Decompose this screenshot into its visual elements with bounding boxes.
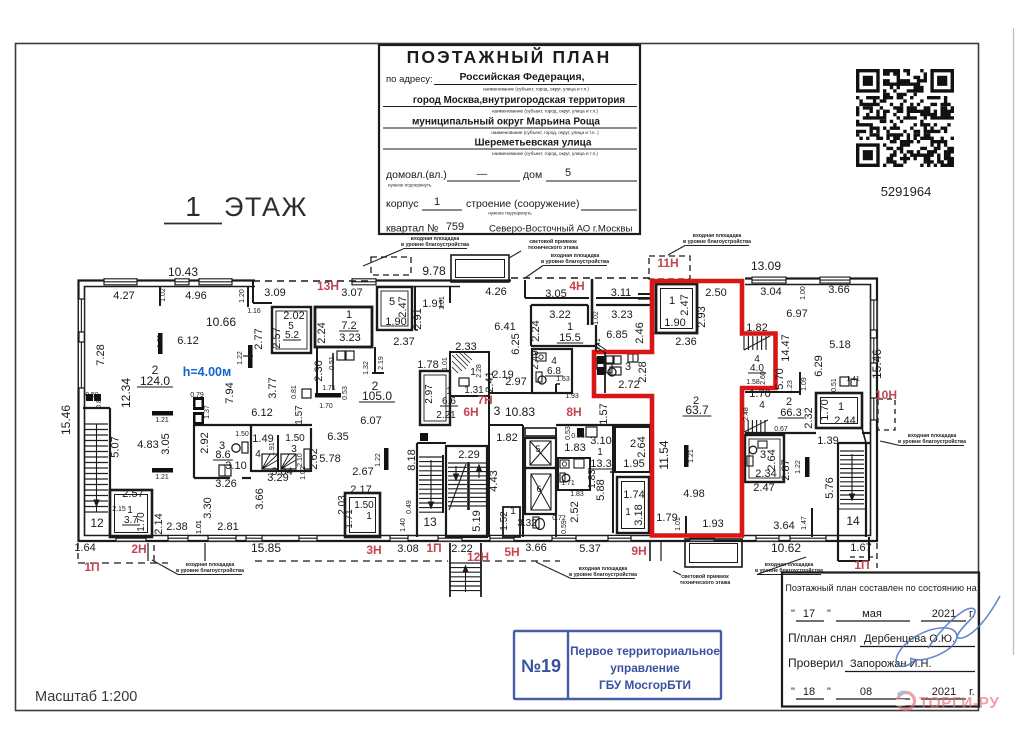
svg-text:3.07: 3.07: [341, 287, 362, 299]
svg-text:Проверил: Проверил: [788, 656, 843, 670]
svg-text:1: 1: [669, 295, 675, 307]
svg-text:15.46: 15.46: [59, 405, 73, 435]
svg-text:1.71: 1.71: [322, 385, 336, 392]
svg-text:2.28: 2.28: [476, 364, 483, 378]
svg-text:3.10: 3.10: [225, 460, 246, 472]
svg-text:2.97: 2.97: [505, 376, 526, 388]
svg-text:1.21: 1.21: [155, 474, 169, 481]
svg-text:2.10: 2.10: [297, 453, 304, 467]
svg-text:13Н: 13Н: [317, 279, 339, 293]
svg-text:14.47: 14.47: [780, 334, 792, 362]
svg-text:3.11: 3.11: [611, 287, 632, 299]
svg-text:3.32: 3.32: [517, 518, 537, 529]
svg-text:1П: 1П: [854, 558, 869, 572]
svg-text:0.51: 0.51: [329, 356, 336, 370]
svg-text:1.40: 1.40: [400, 518, 407, 532]
svg-text:1.52: 1.52: [499, 511, 510, 531]
svg-text:9Н: 9Н: [631, 544, 646, 558]
svg-text:1.57: 1.57: [598, 403, 610, 424]
svg-text:0.59: 0.59: [561, 520, 568, 534]
svg-text:1.71: 1.71: [561, 480, 575, 487]
svg-text:1.78: 1.78: [417, 359, 438, 371]
svg-text:1.90: 1.90: [664, 317, 685, 329]
svg-text:3.77: 3.77: [267, 377, 279, 398]
svg-text:1.09: 1.09: [801, 377, 808, 391]
svg-text:10.62: 10.62: [771, 541, 801, 555]
svg-text:18: 18: [803, 686, 815, 698]
svg-text:5.78: 5.78: [319, 453, 340, 465]
svg-text:14: 14: [846, 514, 860, 528]
svg-text:в уровне благоустройства: в уровне благоустройства: [683, 238, 751, 245]
svg-text:2.37: 2.37: [393, 336, 414, 348]
svg-text:в уровне благоустройства: в уровне благоустройства: [176, 567, 244, 574]
svg-text:2Н: 2Н: [131, 542, 146, 556]
svg-text:2.57: 2.57: [122, 488, 143, 500]
svg-text:5Н: 5Н: [504, 545, 519, 559]
svg-text:1.32: 1.32: [363, 361, 370, 375]
svg-text:7.28: 7.28: [95, 344, 107, 365]
svg-text:корпус: корпус: [386, 198, 418, 210]
svg-text:4.43: 4.43: [488, 470, 500, 491]
svg-text:2.46: 2.46: [634, 322, 646, 343]
svg-text:1.22: 1.22: [795, 460, 802, 474]
svg-text:10.83: 10.83: [505, 405, 535, 419]
svg-text:2.24: 2.24: [316, 322, 328, 343]
svg-text:2.38: 2.38: [166, 521, 187, 533]
svg-text:1: 1: [838, 401, 844, 413]
svg-text:15.5: 15.5: [559, 332, 580, 344]
svg-text:2.64: 2.64: [766, 449, 778, 470]
svg-text:2.33: 2.33: [455, 341, 476, 353]
svg-text:1.63: 1.63: [556, 376, 570, 383]
svg-text:в уровне благоустройства: в уровне благоустройства: [898, 438, 966, 445]
svg-text:1.71: 1.71: [344, 509, 355, 529]
svg-text:1.01: 1.01: [439, 296, 446, 310]
svg-text:124.0: 124.0: [140, 374, 170, 388]
svg-text:2.15: 2.15: [112, 506, 126, 513]
svg-text:2.48: 2.48: [743, 407, 750, 421]
svg-text:3.66: 3.66: [254, 488, 266, 509]
svg-text:2.30: 2.30: [313, 360, 325, 381]
svg-text:0.79: 0.79: [190, 392, 204, 399]
svg-text:1.70: 1.70: [136, 512, 147, 532]
svg-text:1П: 1П: [84, 560, 99, 574]
svg-text:3.22: 3.22: [549, 309, 570, 321]
svg-text:№19: №19: [521, 656, 561, 676]
svg-text:3.10: 3.10: [590, 435, 611, 447]
svg-text:13.3: 13.3: [590, 458, 611, 470]
svg-text:66.3: 66.3: [780, 407, 801, 419]
svg-text:1.02: 1.02: [160, 288, 167, 302]
svg-text:13: 13: [423, 515, 437, 529]
svg-text:Российская Федерация,: Российская Федерация,: [459, 71, 584, 83]
svg-text:нужное подчеркнуть: нужное подчеркнуть: [488, 211, 532, 216]
svg-text:10Н: 10Н: [875, 388, 897, 402]
svg-text:1.83: 1.83: [570, 491, 584, 498]
svg-text:управление: управление: [610, 661, 680, 675]
svg-text:5.07: 5.07: [110, 436, 122, 457]
svg-text:759: 759: [446, 221, 464, 233]
svg-text:строение (сооружение): строение (сооружение): [466, 198, 580, 210]
svg-text:0.53: 0.53: [342, 386, 349, 400]
svg-text:0.67: 0.67: [774, 426, 788, 433]
svg-text:ЭТАЖ: ЭТАЖ: [224, 192, 308, 222]
svg-text:наименование (субъект, город,: наименование (субъект, город, округ, ули…: [492, 151, 598, 156]
svg-text:4.96: 4.96: [185, 290, 206, 302]
svg-text:1.02: 1.02: [593, 311, 600, 325]
svg-text:2.14: 2.14: [153, 513, 165, 534]
svg-text:1.70: 1.70: [819, 399, 831, 420]
svg-text:технического этажа: технического этажа: [528, 245, 579, 251]
svg-text:1.22: 1.22: [375, 453, 382, 467]
svg-text:6Н: 6Н: [463, 405, 478, 419]
svg-text:0.82: 0.82: [96, 395, 103, 409]
svg-text:2.21: 2.21: [436, 410, 456, 421]
svg-text:1.01: 1.01: [675, 517, 682, 531]
svg-text:": ": [791, 608, 795, 620]
svg-text:2.50: 2.50: [705, 287, 726, 299]
svg-text:17: 17: [803, 608, 815, 620]
svg-text:6.25: 6.25: [510, 333, 522, 354]
svg-text:3: 3: [494, 404, 501, 418]
svg-text:2.24: 2.24: [530, 320, 542, 341]
svg-text:": ": [827, 608, 831, 620]
svg-text:0.51: 0.51: [831, 378, 838, 392]
svg-text:дом: дом: [523, 169, 542, 181]
svg-text:11Н: 11Н: [657, 256, 678, 270]
svg-text:в уровне благоустройства: в уровне благоустройства: [401, 241, 469, 248]
svg-text:7.94: 7.94: [224, 382, 236, 403]
svg-text:2.62: 2.62: [308, 448, 320, 469]
svg-text:12Н: 12Н: [467, 550, 489, 564]
svg-text:4.98: 4.98: [683, 488, 704, 500]
svg-text:4.26: 4.26: [485, 286, 506, 298]
svg-text:2021: 2021: [932, 608, 956, 620]
svg-text:нужное подчеркнуть: нужное подчеркнуть: [388, 183, 432, 188]
svg-text:1.70: 1.70: [749, 388, 770, 400]
svg-text:домовл.(вл.): домовл.(вл.): [386, 169, 447, 181]
svg-text:1.50: 1.50: [354, 500, 374, 511]
svg-text:3Н: 3Н: [366, 543, 381, 557]
svg-text:1: 1: [597, 447, 603, 458]
svg-text:6.41: 6.41: [494, 321, 515, 333]
svg-text:0.81: 0.81: [291, 385, 298, 399]
svg-text:ПОЭТАЖНЫЙ ПЛАН: ПОЭТАЖНЫЙ ПЛАН: [407, 46, 612, 67]
svg-text:1.95: 1.95: [623, 458, 644, 470]
svg-text:10.66: 10.66: [206, 315, 236, 329]
svg-text:63.7: 63.7: [685, 403, 709, 417]
svg-text:5: 5: [535, 444, 540, 454]
svg-text:2.52: 2.52: [569, 501, 581, 522]
svg-text:1.67: 1.67: [850, 542, 871, 554]
svg-text:3.29: 3.29: [267, 472, 288, 484]
svg-text:7.2: 7.2: [341, 320, 356, 332]
svg-text:2.47: 2.47: [753, 482, 774, 494]
svg-text:ГБУ МосгорБТИ: ГБУ МосгорБТИ: [599, 678, 691, 692]
svg-text:0.41: 0.41: [595, 338, 602, 352]
svg-text:1.93: 1.93: [702, 518, 723, 530]
svg-text:1.91: 1.91: [269, 442, 276, 456]
svg-text:3.23: 3.23: [339, 332, 360, 344]
svg-text:6: 6: [536, 484, 541, 494]
svg-text:2.92: 2.92: [199, 432, 211, 453]
svg-text:1: 1: [185, 191, 201, 222]
svg-text:1: 1: [510, 506, 516, 517]
svg-text:муниципальный округ Марьина Ро: муниципальный округ Марьина Роща: [412, 117, 600, 128]
svg-text:2.17: 2.17: [350, 484, 371, 496]
svg-text:6.12: 6.12: [251, 407, 272, 419]
svg-text:3.09: 3.09: [264, 287, 285, 299]
svg-text:Северо-Восточный АО г.Москвы: Северо-Восточный АО г.Москвы: [489, 224, 632, 235]
svg-text:1.21: 1.21: [157, 334, 164, 348]
svg-text:наименование (субъект, город,: наименование (субъект, город, округ, ули…: [491, 130, 599, 135]
svg-text:2.49: 2.49: [530, 350, 541, 370]
svg-text:2.36: 2.36: [675, 336, 696, 348]
svg-text:2.41: 2.41: [484, 371, 496, 392]
svg-text:1.50: 1.50: [235, 431, 249, 438]
svg-text:2.29: 2.29: [458, 449, 479, 461]
svg-text:световой приямок: световой приямок: [681, 573, 729, 580]
svg-text:3.26: 3.26: [215, 478, 236, 490]
svg-text:3.64: 3.64: [773, 520, 794, 532]
svg-text:3.66: 3.66: [525, 542, 546, 554]
svg-text:5.37: 5.37: [579, 543, 600, 555]
svg-text:5: 5: [565, 167, 571, 179]
svg-text:6.35: 6.35: [327, 431, 348, 443]
svg-text:1.70: 1.70: [319, 403, 333, 410]
svg-text:": ": [827, 686, 831, 698]
svg-text:П/план снял: П/план снял: [788, 631, 856, 645]
svg-text:9.78: 9.78: [422, 264, 446, 278]
svg-text:1.01: 1.01: [442, 357, 449, 371]
svg-text:1.23: 1.23: [787, 380, 794, 394]
svg-text:4.27: 4.27: [113, 290, 134, 302]
svg-text:105.0: 105.0: [362, 389, 392, 403]
svg-text:2.87: 2.87: [780, 459, 792, 480]
svg-text:15.85: 15.85: [251, 541, 281, 555]
svg-text:2.93: 2.93: [696, 306, 708, 327]
svg-text:2.57: 2.57: [271, 327, 283, 348]
svg-text:Дербенцева О.Ю.: Дербенцева О.Ю.: [864, 633, 955, 645]
svg-text:3.18: 3.18: [633, 504, 645, 525]
svg-text:1.21: 1.21: [155, 417, 169, 424]
svg-text:1.82: 1.82: [496, 432, 517, 444]
svg-text:2.02: 2.02: [283, 310, 304, 322]
svg-text:2.19: 2.19: [378, 356, 385, 370]
svg-text:2.81: 2.81: [217, 521, 238, 533]
svg-text:2.47: 2.47: [397, 296, 409, 317]
svg-text:2.32: 2.32: [803, 407, 815, 428]
svg-text:1.83: 1.83: [587, 469, 598, 489]
svg-text:0.49: 0.49: [406, 500, 413, 514]
svg-text:2.44: 2.44: [834, 415, 855, 427]
svg-text:1.41: 1.41: [846, 376, 860, 383]
svg-text:1.16: 1.16: [247, 308, 261, 315]
svg-text:3: 3: [625, 361, 631, 373]
svg-text:3.23: 3.23: [611, 309, 632, 321]
svg-text:4: 4: [255, 449, 261, 460]
svg-text:3.08: 3.08: [397, 543, 418, 555]
svg-text:h=4.00м: h=4.00м: [183, 365, 232, 379]
svg-text:по адресу:: по адресу:: [386, 74, 433, 85]
svg-text:1.74: 1.74: [623, 489, 644, 501]
svg-text:наименование (субъект, город,: наименование (субъект, город, округ, ули…: [492, 109, 598, 114]
svg-text:5.2: 5.2: [285, 330, 299, 341]
svg-text:2.60: 2.60: [760, 371, 767, 385]
svg-text:5: 5: [389, 296, 395, 308]
svg-text:1.00: 1.00: [800, 286, 807, 300]
svg-text:технического этажа: технического этажа: [680, 580, 731, 586]
svg-text:Первое территориальное: Первое территориальное: [570, 644, 720, 658]
svg-text:Шереметьевская улица: Шереметьевская улица: [475, 138, 592, 149]
svg-text:в уровне благоустройства: в уровне благоустройства: [541, 258, 609, 265]
svg-text:1.57: 1.57: [294, 405, 305, 425]
svg-text:6.6: 6.6: [442, 396, 456, 407]
svg-text:1: 1: [434, 196, 440, 208]
svg-text:2.64: 2.64: [636, 436, 648, 457]
svg-text:5.76: 5.76: [824, 477, 836, 498]
svg-text:12.34: 12.34: [119, 378, 133, 408]
svg-text:1.82: 1.82: [746, 322, 767, 334]
svg-text:5291964: 5291964: [881, 184, 932, 199]
svg-text:световой приямок: световой приямок: [529, 238, 577, 245]
svg-text:квартал №: квартал №: [386, 223, 438, 235]
svg-text:1.58: 1.58: [746, 379, 760, 386]
svg-text:1.39: 1.39: [817, 435, 838, 447]
svg-text:4Н: 4Н: [569, 279, 584, 293]
svg-text:1.37: 1.37: [204, 405, 211, 419]
svg-text:1.47: 1.47: [801, 516, 808, 530]
svg-text:3.05: 3.05: [545, 288, 566, 300]
svg-text:3.66: 3.66: [828, 284, 849, 296]
svg-text:5.19: 5.19: [471, 510, 483, 531]
svg-text:3.05: 3.05: [160, 433, 172, 454]
svg-text:11.54: 11.54: [657, 440, 671, 469]
svg-text:5.18: 5.18: [829, 339, 850, 351]
svg-text:15.46: 15.46: [870, 349, 884, 379]
svg-text:мая: мая: [862, 608, 882, 620]
svg-text:6.29: 6.29: [813, 355, 825, 376]
svg-text:13.09: 13.09: [751, 259, 781, 273]
svg-text:1: 1: [366, 511, 372, 522]
svg-text:в уровне благоустройства: в уровне благоустройства: [569, 571, 637, 578]
svg-text:12: 12: [90, 516, 104, 530]
svg-text:2.47: 2.47: [679, 294, 691, 315]
svg-text:1.01: 1.01: [196, 520, 203, 534]
svg-text:ТОРГИ-РУ: ТОРГИ-РУ: [919, 695, 999, 712]
svg-text:1.21: 1.21: [688, 449, 695, 463]
svg-text:1: 1: [625, 507, 631, 518]
svg-text:7Н: 7Н: [477, 393, 492, 407]
svg-text:—: —: [477, 168, 488, 180]
svg-text:8.6: 8.6: [215, 449, 230, 461]
svg-text:город Москва,внутригородская т: город Москва,внутригородская территория: [413, 95, 625, 106]
svg-text:3.04: 3.04: [760, 286, 781, 298]
svg-text:2.77: 2.77: [253, 328, 265, 349]
svg-text:3.30: 3.30: [202, 497, 214, 518]
svg-text:наименование (субъект, город,: наименование (субъект, город, округ, ули…: [483, 87, 589, 92]
svg-text:5.70: 5.70: [774, 368, 786, 389]
svg-text:8.18: 8.18: [406, 449, 418, 470]
svg-text:1.02: 1.02: [300, 466, 307, 480]
svg-text:1П: 1П: [426, 541, 441, 555]
svg-text:10.43: 10.43: [168, 265, 198, 279]
svg-text:1.50: 1.50: [285, 433, 305, 444]
svg-text:1.22: 1.22: [237, 351, 244, 365]
svg-text:1.93: 1.93: [565, 393, 579, 400]
svg-text:0.83: 0.83: [571, 433, 585, 440]
svg-text:08: 08: [860, 686, 872, 698]
svg-text:1.64: 1.64: [74, 542, 95, 554]
svg-text:6.85: 6.85: [606, 329, 627, 341]
svg-text:2.97: 2.97: [424, 384, 435, 404]
svg-text:4: 4: [759, 400, 765, 411]
svg-text:2.91: 2.91: [412, 308, 424, 329]
svg-text:6.12: 6.12: [177, 335, 198, 347]
svg-text:Поэтажный план составлен по со: Поэтажный план составлен по состоянию на: [785, 583, 977, 593]
svg-text:1.83: 1.83: [564, 442, 585, 454]
svg-text:8Н: 8Н: [566, 405, 581, 419]
svg-text:4.83: 4.83: [137, 439, 158, 451]
svg-text:2.28: 2.28: [637, 361, 649, 382]
svg-text:": ": [791, 686, 795, 698]
svg-text:6.07: 6.07: [360, 415, 381, 427]
svg-text:6.97: 6.97: [786, 308, 807, 320]
svg-text:1.20: 1.20: [239, 289, 246, 303]
svg-text:Масштаб 1:200: Масштаб 1:200: [35, 689, 137, 705]
svg-text:2.67: 2.67: [352, 466, 373, 478]
